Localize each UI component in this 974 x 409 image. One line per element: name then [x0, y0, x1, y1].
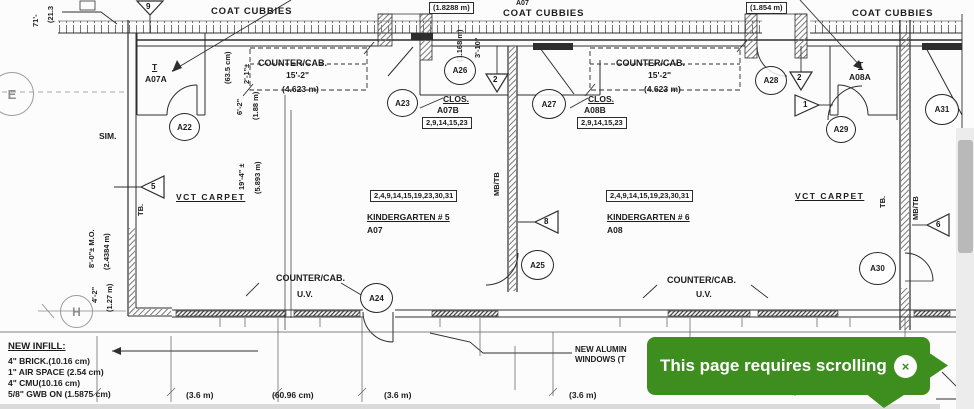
- scroll-toast: This page requires scrolling ×: [647, 337, 930, 395]
- room-tag-a24: A24: [360, 283, 393, 313]
- room-tag-a26: A26: [444, 56, 476, 85]
- door-tag-2-symbol: T: [858, 61, 863, 70]
- dim-71ft: 71'-: [32, 14, 40, 27]
- new-infill-line-4: 5/8" GWB ON (1.5875 cm): [8, 390, 111, 399]
- dim-63-5cm: (63.5 cm): [224, 51, 232, 84]
- window-sills: [176, 311, 950, 316]
- bottom-dim-1: (3.6 m): [186, 391, 213, 400]
- room-tag-a22: A22: [169, 113, 200, 141]
- dim-4-2: 4'-2": [91, 287, 99, 303]
- vct-carpet-right: VCT CARPET: [795, 192, 864, 201]
- uv-counter-1-sub: U.V.: [297, 290, 313, 299]
- room-2-number: A08: [607, 226, 623, 235]
- closet-2-label: CLOS.: [588, 95, 614, 104]
- dim-3-10: 3'-10": [474, 38, 482, 58]
- room-tag-a27: A27: [532, 89, 566, 119]
- room-tag-a30: A30: [859, 252, 896, 285]
- floor-plan-viewer: COAT CUBBIES COAT CUBBIES COAT CUBBIES (…: [0, 0, 974, 409]
- toast-close-button[interactable]: ×: [894, 355, 917, 378]
- sim-label: SIM.: [99, 132, 116, 141]
- tb-left: TB.: [137, 204, 145, 216]
- door-dim-1-8288: (1.8288 m): [429, 2, 474, 14]
- counter-1-length: 15'-2": [286, 71, 309, 80]
- dim-1-88m: (1.88 m): [252, 92, 260, 120]
- toast-message: This page requires scrolling: [660, 356, 887, 376]
- bottom-dim-3: (3.6 m): [384, 391, 411, 400]
- dim-19-4: 19'-4" ±: [238, 163, 246, 190]
- room-tag-a23: A23: [387, 89, 418, 117]
- dim-5-893m: (5.893 m): [254, 161, 262, 194]
- dim-1-27m: (1.27 m): [106, 284, 114, 312]
- room-2-name: KINDERGARTEN # 6: [607, 213, 690, 222]
- keynote-8: 8: [544, 217, 548, 226]
- door-tag-1-number: A07A: [145, 75, 167, 84]
- dim-8-0-mo: 8'-0"± M.O.: [88, 229, 96, 268]
- closet-1-keys: 2,9,14,15,23: [422, 117, 472, 129]
- new-infill-title: NEW INFILL:: [8, 342, 66, 352]
- dim-2-1: 2'-1"±: [243, 64, 251, 84]
- room-2-finish-keys: 2,4,9,14,15,19,23,30,31: [606, 190, 693, 202]
- uv-counter-2-sub: U.V.: [696, 290, 712, 299]
- bottom-dim-2: (60.96 cm): [272, 391, 314, 400]
- counter-2-length: 15'-2": [648, 71, 671, 80]
- new-infill-line-3: 4" CMU(10.16 cm): [8, 379, 80, 388]
- cubby-shelving: [58, 21, 962, 33]
- room-a08a-walls: [830, 46, 897, 120]
- window-note-line-2: WINDOWS (T: [575, 356, 625, 365]
- room-tag-a25: A25: [521, 250, 554, 280]
- keynote-9: 9: [146, 2, 150, 11]
- door-tag-1-symbol: T: [152, 63, 157, 72]
- room-1-finish-keys: 2,4,9,14,15,19,23,30,31: [370, 190, 457, 202]
- page-edge-strip: [0, 404, 940, 409]
- coat-cubbies-label-1: COAT CUBBIES: [211, 7, 292, 17]
- top-room-ref: A07: [516, 0, 529, 8]
- door-dim-1-854: (1.854 m): [746, 2, 787, 14]
- coat-cubbies-label-3: COAT CUBBIES: [852, 9, 933, 19]
- keynote-2b: 2: [797, 73, 801, 82]
- closet-1-number: A07B: [437, 106, 459, 115]
- window-note-line-1: NEW ALUMIN: [575, 346, 627, 355]
- room-tag-a29: A29: [826, 116, 856, 143]
- uv-counter-1-name: COUNTER/CAB.: [276, 274, 345, 284]
- closet-2-number: A08B: [584, 106, 606, 115]
- room-tag-a28: A28: [755, 66, 787, 95]
- keynote-6: 6: [936, 220, 940, 229]
- mbtb-center: MB/TB: [493, 172, 501, 196]
- vct-carpet-left: VCT CARPET: [176, 193, 245, 202]
- closet-1-label: CLOS.: [443, 95, 469, 104]
- grid-bubble-h: H: [60, 295, 93, 328]
- counter-1-name: COUNTER/CAB.: [258, 59, 327, 69]
- door-tag-2-number: A08A: [849, 73, 871, 82]
- dim-6-2: 6'-2": [236, 99, 244, 115]
- bottom-dim-4: (3.6 m): [569, 391, 596, 400]
- counter-1-metric: (4.623 m): [282, 85, 319, 94]
- room-tag-a31: A31: [925, 94, 959, 125]
- room-1-number: A07: [367, 226, 383, 235]
- vertical-scrollbar[interactable]: [956, 128, 974, 409]
- dim-21-3: (21.3: [47, 6, 55, 23]
- keynote-5: 5: [151, 182, 155, 191]
- room-1-name: KINDERGARTEN # 5: [367, 213, 450, 222]
- scrollbar-thumb[interactable]: [958, 140, 973, 253]
- keynote-1: 1: [803, 100, 807, 109]
- new-infill-line-2: 1" AIR SPACE (2.54 cm): [8, 368, 104, 377]
- uv-counter-2-name: COUNTER/CAB.: [667, 276, 736, 286]
- coat-cubbies-label-2: COAT CUBBIES: [503, 9, 584, 19]
- dim-2-4384m: (2.4384 m): [103, 233, 111, 270]
- counter-2-metric: (4.623 m): [644, 85, 681, 94]
- mbtb-right: MB/TB: [912, 196, 920, 220]
- tb-right: TB.: [879, 196, 887, 208]
- keynote-2a: 2: [493, 75, 497, 84]
- new-infill-line-1: 4" BRICK.(10.16 cm): [8, 357, 90, 366]
- closet-2-keys: 2,9,14,15,23: [577, 117, 627, 129]
- counter-2-name: COUNTER/CAB.: [616, 59, 685, 69]
